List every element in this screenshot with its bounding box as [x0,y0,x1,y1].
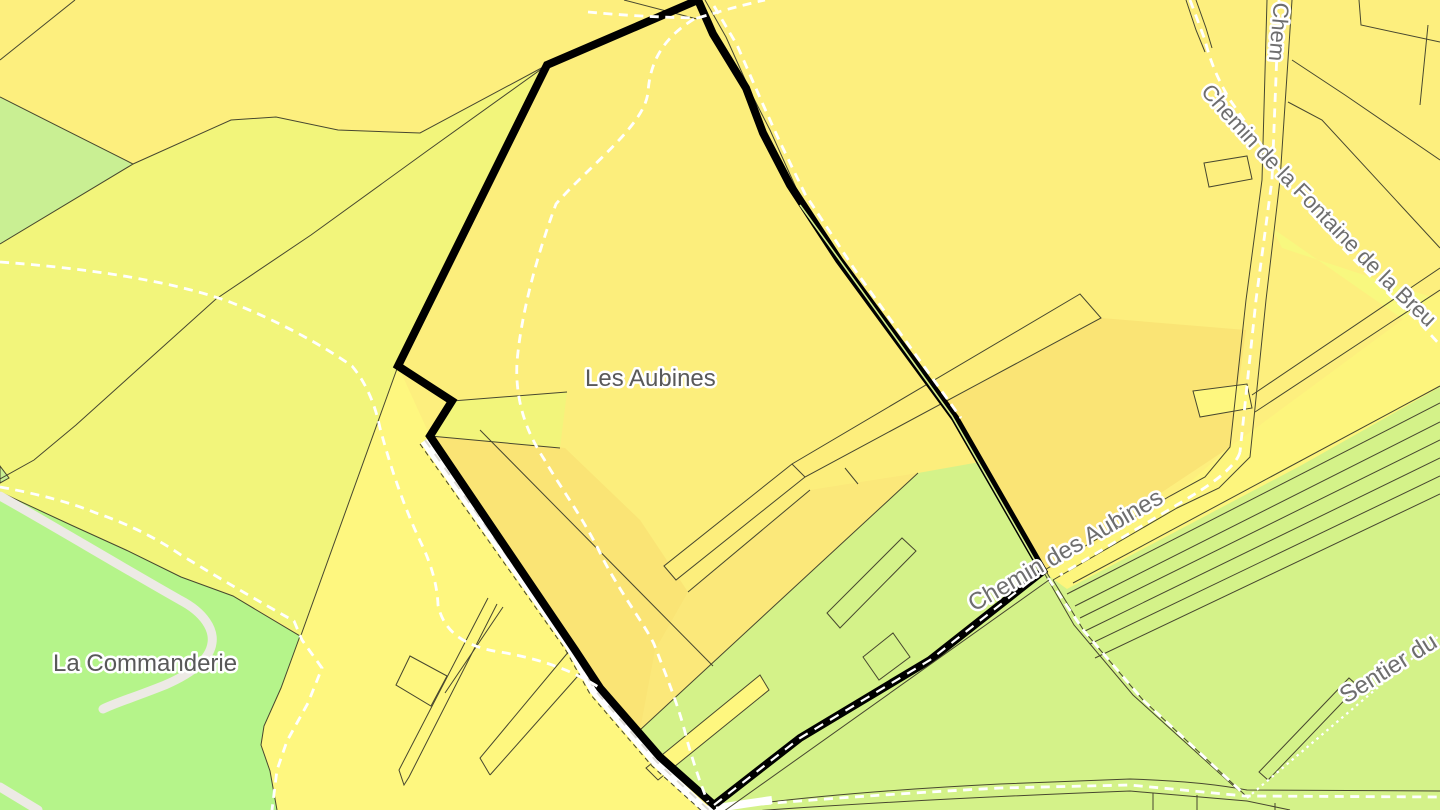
svg-text:Chem: Chem [1264,2,1294,63]
svg-text:La Commanderie: La Commanderie [53,650,237,677]
svg-text:Les Aubines: Les Aubines [585,365,716,392]
